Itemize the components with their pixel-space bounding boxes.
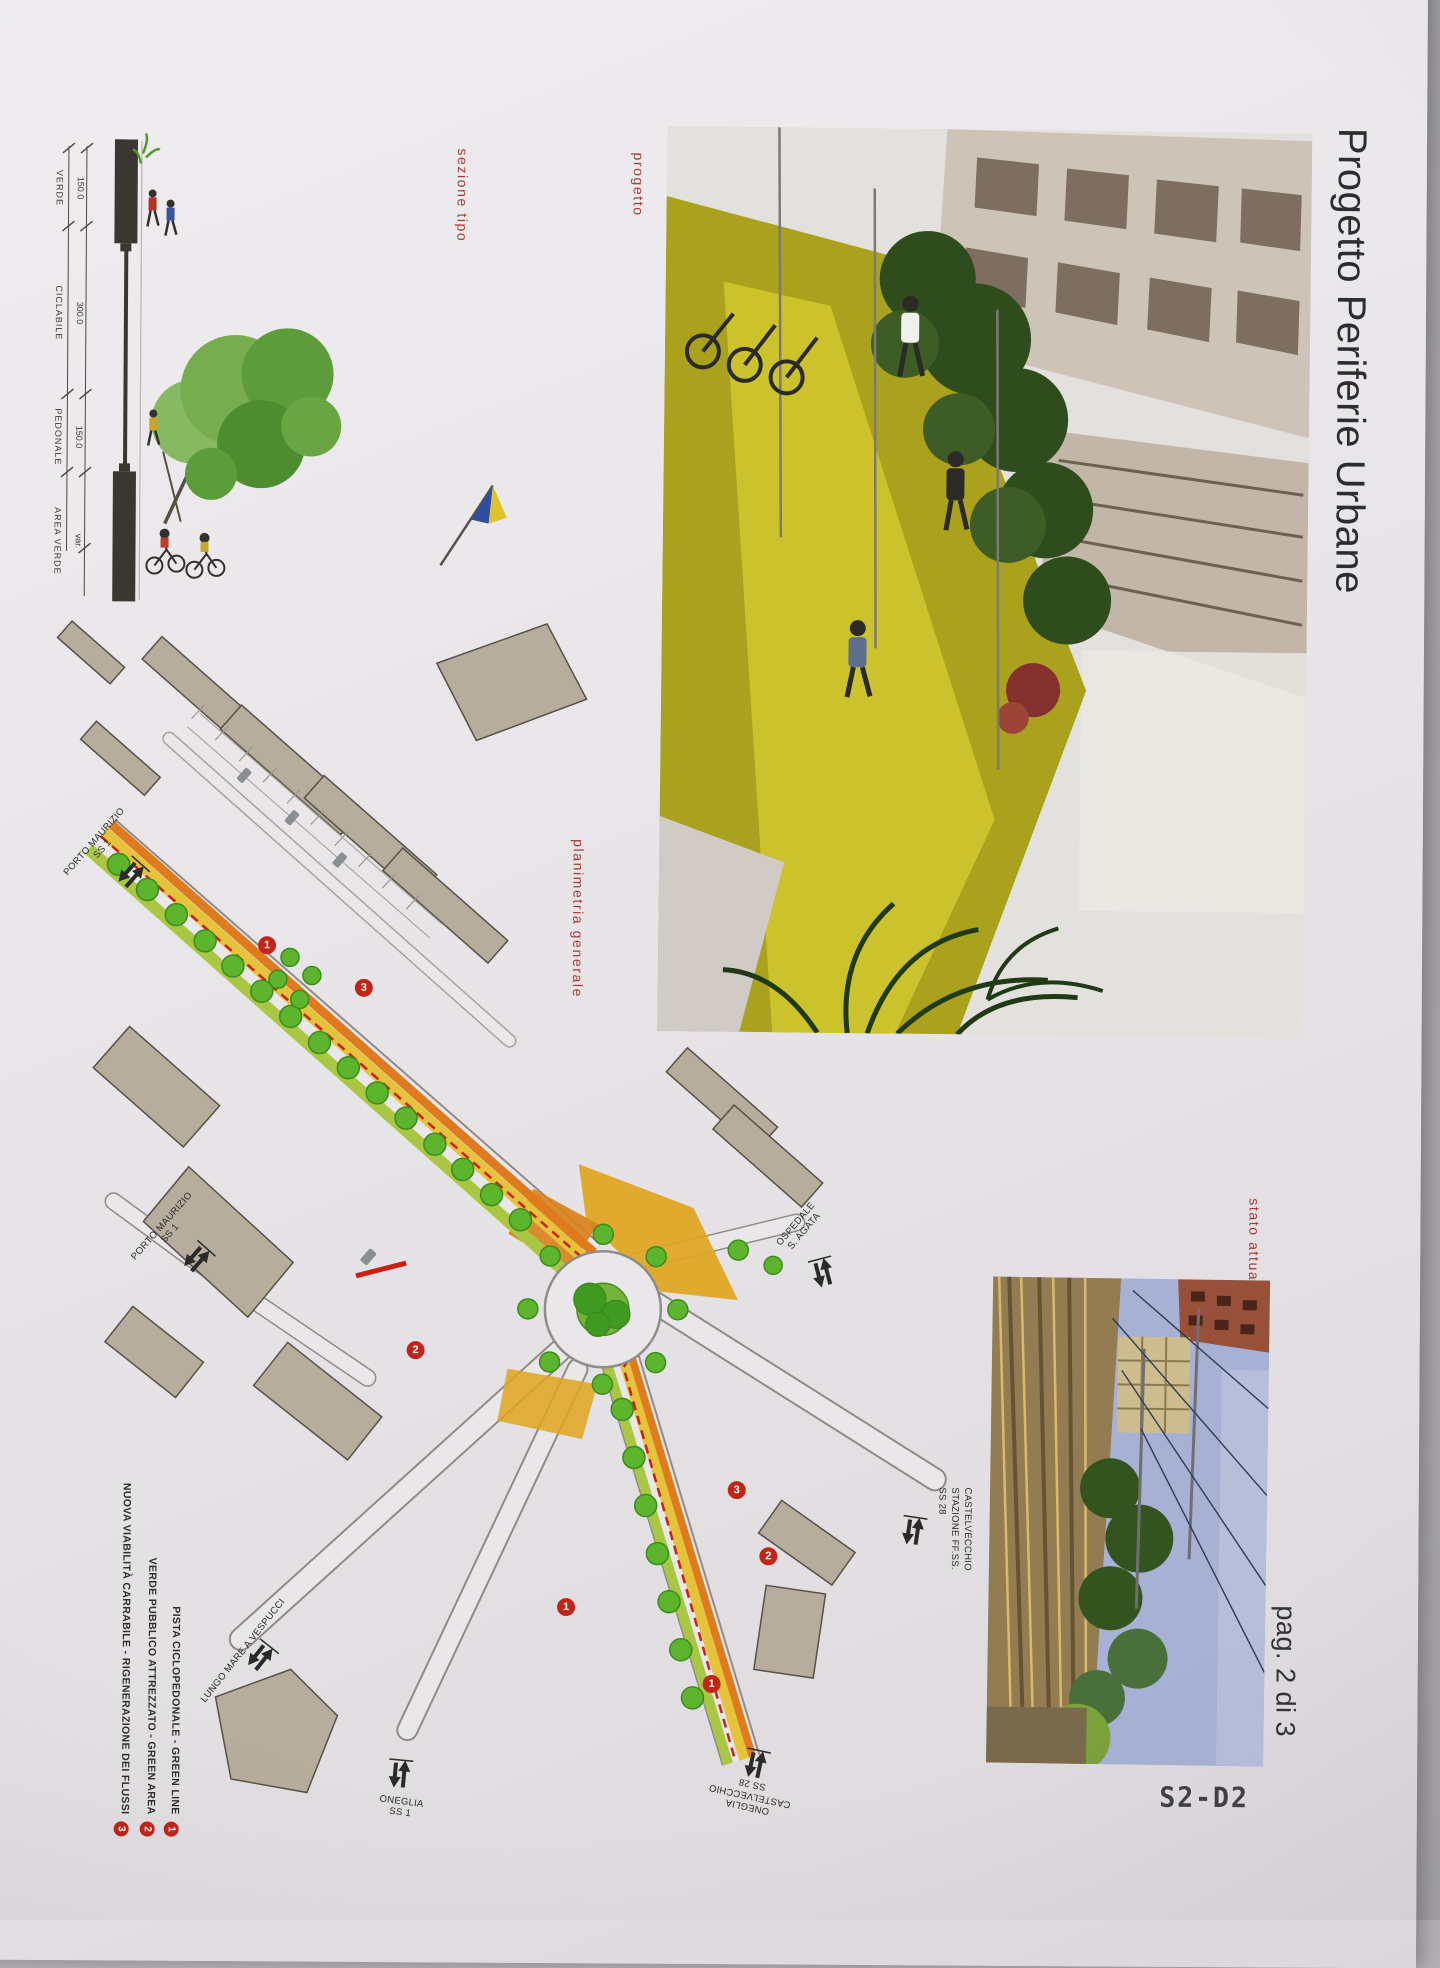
photo-wall xyxy=(986,1706,1087,1763)
section-greenery xyxy=(131,133,343,524)
legend-item: VERDE PUBBLICO ATTREZZATO - GREEN AREA2 xyxy=(139,1464,159,1836)
svg-text:150.0: 150.0 xyxy=(76,177,86,200)
svg-text:CICLABILE: CICLABILE xyxy=(54,285,64,340)
svg-text:var.: var. xyxy=(74,534,84,549)
stato-attuale-photo xyxy=(986,1276,1270,1766)
page-number: pag. 2 di 3 xyxy=(1269,1605,1301,1737)
svg-text:AREA VERDE: AREA VERDE xyxy=(52,507,62,575)
direction-arrows-icon xyxy=(898,1513,928,1548)
plan-marker: 2 xyxy=(407,1341,425,1359)
legend-number-badge: 1 xyxy=(164,1822,179,1837)
svg-text:150.0: 150.0 xyxy=(74,426,84,449)
direction-arrows-icon xyxy=(386,1757,415,1791)
road-profile xyxy=(112,139,142,601)
legend-number-badge: 2 xyxy=(140,1821,155,1836)
dimension-rail xyxy=(60,143,93,596)
page-content: Progetto Periferie Urbane pag. 2 di 3 S2… xyxy=(0,0,1440,1924)
section-diagram: 150.0 VERDE 300.0 CICLABILE 150.0 PEDONA… xyxy=(42,91,515,606)
svg-text:VERDE: VERDE xyxy=(55,170,65,206)
svg-text:300.0: 300.0 xyxy=(75,302,85,325)
flag-icon xyxy=(440,485,506,565)
cyclist-figures xyxy=(146,529,224,577)
page-title: Progetto Periferie Urbane xyxy=(1326,128,1374,594)
label-progetto: progetto xyxy=(631,152,647,216)
stato-attuale-art xyxy=(986,1276,1270,1766)
plan-marker: 3 xyxy=(355,979,373,997)
plan-marker: 1 xyxy=(703,1675,721,1693)
photographed-document: Progetto Periferie Urbane pag. 2 di 3 S2… xyxy=(0,0,1440,1920)
plan-marker: 2 xyxy=(759,1547,777,1565)
legend-item: PISTA CICLOPEDONALE - GREEN LINE1 xyxy=(163,1465,183,1837)
plan-marker: 3 xyxy=(728,1481,746,1499)
legend-item: NUOVA VIABILITÀ CARRABILE - RIGENERAZION… xyxy=(113,1464,133,1836)
svg-text:PEDONALE: PEDONALE xyxy=(53,408,63,465)
plan-marker: 1 xyxy=(557,1598,575,1616)
legend-item-text: PISTA CICLOPEDONALE - GREEN LINE xyxy=(169,1606,182,1814)
section-cut-mark xyxy=(356,1263,406,1276)
legend-number-badge: 3 xyxy=(114,1821,129,1836)
sheet-code: S2-D2 xyxy=(1159,1781,1249,1815)
legend-item-text: VERDE PUBBLICO ATTREZZATO - GREEN AREA xyxy=(145,1558,159,1815)
direction-label-line: SS 28 xyxy=(934,1487,947,1571)
direction-label-line: STAZIONE FF.SS. xyxy=(947,1487,960,1571)
plan-marker: 1 xyxy=(258,936,276,954)
direction-label-line: CASTELVECCHIO xyxy=(960,1487,973,1571)
direction-label-stazione: SS 28 STAZIONE FF.SS. CASTELVECCHIO xyxy=(934,1487,973,1571)
legend-item-text: NUOVA VIABILITÀ CARRABILE - RIGENERAZION… xyxy=(119,1483,133,1815)
